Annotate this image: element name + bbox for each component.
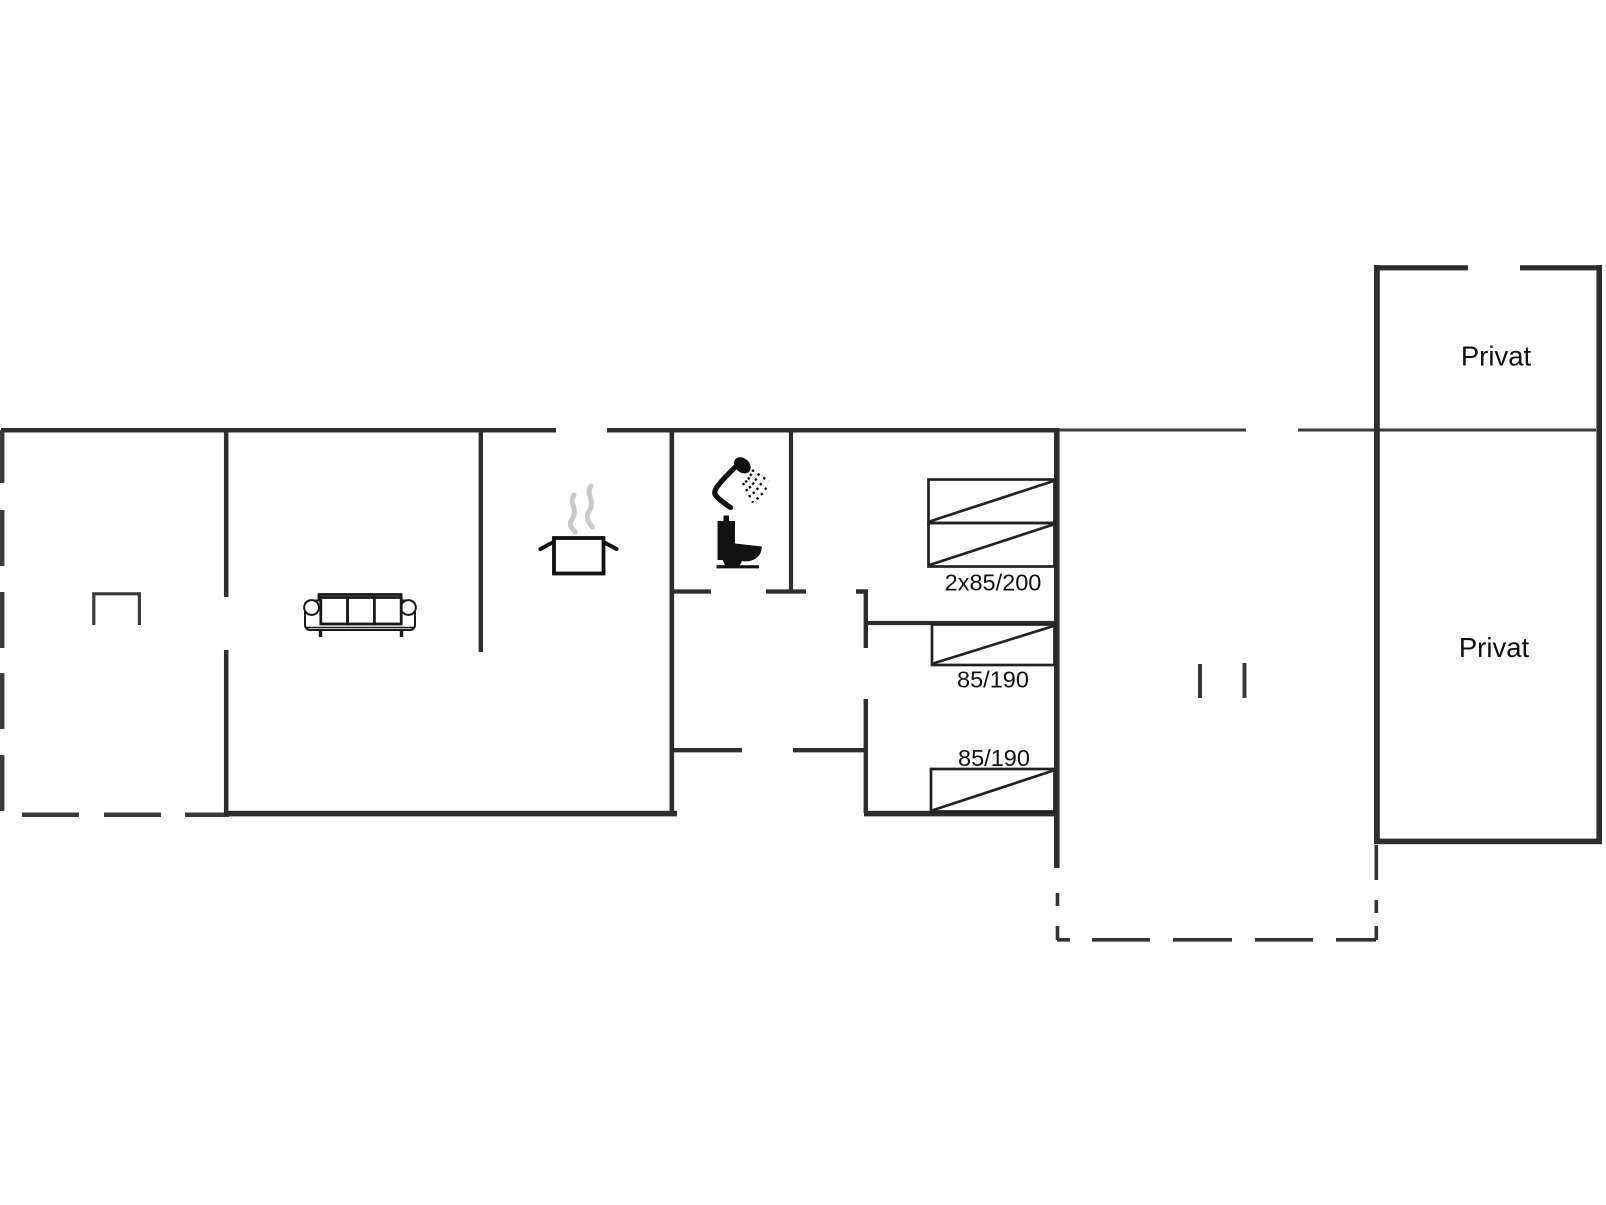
svg-text:Privat: Privat [1461,341,1532,372]
svg-text:85/190: 85/190 [958,745,1030,771]
svg-text:2x85/200: 2x85/200 [945,570,1042,596]
svg-text:85/190: 85/190 [957,667,1029,693]
svg-text:Privat: Privat [1459,632,1530,663]
